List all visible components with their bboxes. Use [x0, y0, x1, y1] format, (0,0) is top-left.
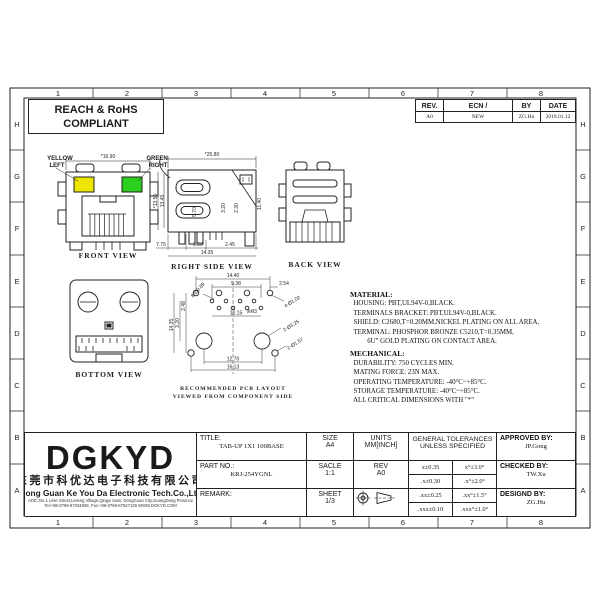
material-note: HOUSING: PBT,UL94V-0,BLACK.: [350, 299, 578, 308]
rev-value: A0: [415, 112, 443, 123]
projection-cell: [354, 489, 409, 517]
company-address-2: Tel:+86-0769-87334608, Fax:+86-0769-8764…: [44, 503, 176, 508]
sheet-cell: SHEET 1/3: [307, 489, 354, 517]
mechanical-note: ALL CRITICAL DIMENSIONS WITH "*": [350, 396, 578, 405]
tolerance-cell: .x°±2.0°: [453, 475, 497, 489]
pcb-hole-d-label: 2-Ø1.57: [286, 337, 305, 352]
mechanical-note: STORAGE TEMPERATURE: -40°C~+85°C.: [350, 387, 578, 396]
by-value: ZG.Hu: [512, 112, 540, 123]
remark-cell: REMARK:: [197, 489, 307, 517]
pcb-hole-3-25: [196, 333, 212, 349]
designed-label: DESIGND BY:: [497, 489, 575, 498]
right-dim-b3: 2.45: [225, 242, 235, 248]
drawing-sheet: *16.90 YELLOW LEFT GREEN RIGHT FRONT VIE…: [0, 0, 600, 600]
right-dim-v1: 5.70: [192, 207, 198, 217]
mechanical-title: MECHANICAL:: [350, 349, 578, 358]
units-value: MM[INCH]: [354, 442, 408, 449]
front-led-green: [122, 177, 142, 192]
grid-row-label: G: [10, 171, 24, 182]
units-label: UNITS: [354, 433, 408, 442]
pcb-hole-c-label: 2-Ø3.25: [282, 319, 301, 334]
tolerance-header-cell: GENERAL TOLERANCES UNLESS SPECIFIED: [409, 433, 497, 461]
grid-row-label: F: [10, 223, 24, 234]
grid-col-label: 7: [462, 517, 482, 528]
material-title: MATERIAL:: [350, 290, 578, 299]
right-dim-h2: 13.45: [160, 195, 166, 208]
compliance-badge: REACH & RoHS COMPLIANT: [28, 99, 164, 134]
tolerance-cell: x°±3.0°: [453, 461, 497, 475]
grid-row-label: B: [10, 432, 24, 443]
units-cell: UNITS MM[INCH]: [354, 433, 409, 461]
company-cell: DGKYD 东莞市科优达电子科技有限公司 Dong Guan Ke You Da…: [25, 433, 197, 517]
scale-label: SACLE: [307, 461, 353, 470]
designed-value: ZG.Hu: [497, 498, 575, 506]
pcb-dim-l3: 2.48: [181, 301, 187, 311]
front-led-right-label-2: RIGHT: [149, 163, 168, 169]
grid-col-label: 4: [255, 517, 275, 528]
pcb-dim-m1: 2.03: [247, 309, 257, 315]
back-view-drawing: [279, 162, 351, 242]
pcb-dim-b1: 12.70: [227, 357, 240, 363]
tolerance-header-1: GENERAL TOLERANCES: [409, 433, 496, 443]
pcb-hole-0-89: [210, 299, 214, 303]
tolerance-header-2: UNLESS SPECIFIED: [409, 443, 496, 450]
checked-cell: CHECKED BY: TW.Xu: [497, 461, 576, 489]
rev-header-date: DATE: [540, 99, 576, 112]
grid-row-label: G: [576, 171, 590, 182]
tolerance-cell: .xxx±0.10: [409, 503, 453, 517]
grid-row-label: C: [576, 380, 590, 391]
grid-row-label: D: [576, 328, 590, 339]
grid-row-label: A: [576, 485, 590, 496]
grid-col-label: 2: [117, 88, 137, 99]
title-value: TAB-UP 1X1 100BASE: [197, 442, 306, 450]
grid-row-label: B: [576, 432, 590, 443]
tolerance-cell: .x±0.30: [409, 475, 453, 489]
front-view-caption: FRONT VIEW: [79, 251, 138, 260]
date-value: 2018.01.12: [540, 112, 576, 123]
front-led-yellow: [74, 177, 94, 192]
revision-row: A0 NEW ZG.Hu 2018.01.12: [415, 112, 576, 123]
grid-row-label: D: [10, 328, 24, 339]
part-no-label: PART NO.:: [197, 461, 306, 470]
title-cell: TITLE: TAB-UP 1X1 100BASE: [197, 433, 307, 461]
right-dim-h1: *13.55: [153, 194, 159, 209]
front-dim-width: *16.90: [101, 154, 116, 160]
size-label: SIZE: [307, 433, 353, 442]
material-note: 6U" GOLD PLATING ON CONTACT AREA.: [350, 337, 578, 346]
grid-col-label: 8: [531, 517, 551, 528]
rev-label: REV: [354, 461, 408, 470]
pcb-hole-a-label: 4-Ø1.02: [283, 295, 302, 310]
material-note: TERMINAL: PHOSPHOR BRONZE C5210,T=0.35MM…: [350, 328, 578, 337]
tolerance-cell: x±0.35: [409, 461, 453, 475]
checked-label: CHECKED BY:: [497, 461, 575, 470]
designed-cell: DESIGND BY: ZG.Hu: [497, 489, 576, 517]
grid-col-label: 8: [531, 88, 551, 99]
right-dim-b1: 7.75: [156, 242, 166, 248]
company-logo: DGKYD: [46, 441, 175, 475]
bottom-view-drawing: [70, 280, 148, 362]
grid-row-label: A: [10, 485, 24, 496]
rev-header-by: BY: [512, 99, 540, 112]
approved-label: APPROVED BY:: [497, 433, 575, 442]
material-note: TERMINALS BRACKET: PBT,UL94V-0,BLACK.: [350, 309, 578, 318]
third-angle-projection-icon: [354, 489, 398, 507]
right-side-view-caption: RIGHT SIDE VIEW: [171, 262, 253, 271]
scale-cell: SACLE 1:1: [307, 461, 354, 489]
grid-col-label: 1: [48, 88, 68, 99]
part-no-value: KRJ-254YGNL: [197, 470, 306, 478]
company-name-en: Dong Guan Ke You Da Electronic Tech.Co.,…: [25, 488, 197, 498]
size-cell: SIZE A4: [307, 433, 354, 461]
pcb-caption-2: VIEWED FROM COMPONENT SIDE: [173, 394, 294, 400]
mechanical-note: DURABILITY: 750 CYCLES MIN.: [350, 359, 578, 368]
material-note: SHIELD: C2680,T=0.20MM,NICKEL PLATING ON…: [350, 318, 578, 327]
grid-row-label: E: [576, 276, 590, 287]
right-side-view-drawing: [156, 156, 258, 256]
grid-col-label: 1: [48, 517, 68, 528]
rev-value: A0: [354, 470, 408, 477]
part-no-cell: PART NO.: KRJ-254YGNL: [197, 461, 307, 489]
pcb-dim-top2: 9.38: [231, 281, 241, 287]
pcb-dim-top3: 2.54: [279, 281, 289, 287]
checked-value: TW.Xu: [497, 470, 575, 478]
tolerance-cell: .xxx°±1.0°: [453, 503, 497, 517]
pcb-hole-b-label: 8-Ø0.89: [190, 281, 207, 299]
bottom-view-caption: BOTTOM VIEW: [75, 370, 142, 379]
grid-row-label: C: [10, 380, 24, 391]
sheet-value: 1/3: [307, 498, 353, 505]
rev-cell: REV A0: [354, 461, 409, 489]
right-dim-width: *25.80: [205, 152, 220, 158]
grid-row-label: H: [576, 119, 590, 130]
revision-table: REV. ECN / DESCRIPTION BY DATE A0 NEW ZG…: [415, 99, 576, 123]
grid-col-label: 3: [186, 88, 206, 99]
size-value: A4: [307, 442, 353, 449]
right-dim-b2: 3.20: [193, 242, 203, 248]
sheet-label: SHEET: [307, 489, 353, 498]
ecn-value: NEW: [443, 112, 512, 123]
approved-value: JP.Gong: [497, 442, 575, 450]
pcb-dim-l2: 3.20: [175, 318, 181, 328]
pcb-dim-top1: 14.40: [227, 273, 240, 279]
grid-row-label: H: [10, 119, 24, 130]
mechanical-note: OPERATING TEMPERATURE: -40°C~+85°C.: [350, 378, 578, 387]
compliance-line-1: REACH & RoHS: [29, 103, 163, 117]
front-led-left-label-1: YELLOW: [47, 156, 73, 162]
grid-row-label: F: [576, 223, 590, 234]
grid-col-label: 2: [117, 517, 137, 528]
rev-header-ecn: ECN / DESCRIPTION: [443, 99, 512, 112]
pcb-dim-m2: 10.15: [230, 311, 243, 317]
grid-col-label: 5: [324, 88, 344, 99]
mechanical-note: MATING FORCE: 23N MAX.: [350, 368, 578, 377]
company-name-cn: 东莞市科优达电子科技有限公司: [25, 475, 197, 488]
grid-col-label: 5: [324, 517, 344, 528]
grid-col-label: 3: [186, 517, 206, 528]
notes-block: MATERIAL: HOUSING: PBT,UL94V-0,BLACK. TE…: [350, 290, 578, 406]
front-led-left-label-2: LEFT: [50, 163, 65, 169]
grid-col-label: 6: [393, 88, 413, 99]
right-dim-v4: 11.40: [257, 198, 263, 210]
grid-col-label: 6: [393, 517, 413, 528]
front-led-right-label-1: GREEN: [146, 156, 167, 162]
tolerance-cell: .xx°±1.5°: [453, 489, 497, 503]
title-label: TITLE:: [197, 433, 306, 442]
scale-value: 1:1: [307, 470, 353, 477]
grid-col-label: 4: [255, 88, 275, 99]
approved-cell: APPROVED BY: JP.Gong: [497, 433, 576, 461]
front-view-drawing: [56, 158, 158, 250]
pcb-caption-1: RECOMMENDED PCB LAYOUT: [180, 386, 286, 392]
title-block: DGKYD 东莞市科优达电子科技有限公司 Dong Guan Ke You Da…: [24, 432, 576, 516]
remark-label: REMARK:: [197, 489, 306, 498]
compliance-line-2: COMPLIANT: [29, 117, 163, 131]
back-view-caption: BACK VIEW: [288, 260, 341, 269]
pcb-dim-b2: 16.13: [227, 365, 240, 371]
grid-col-label: 7: [462, 88, 482, 99]
grid-row-label: E: [10, 276, 24, 287]
pcb-hole-1-57: [188, 350, 194, 356]
right-dim-b4: 14.35: [201, 250, 214, 256]
right-dim-v2: 3.20: [221, 203, 227, 213]
right-dim-v3: 2.30: [234, 203, 240, 213]
tolerance-cell: .xx±0.25: [409, 489, 453, 503]
rev-header-rev: REV.: [415, 99, 443, 112]
